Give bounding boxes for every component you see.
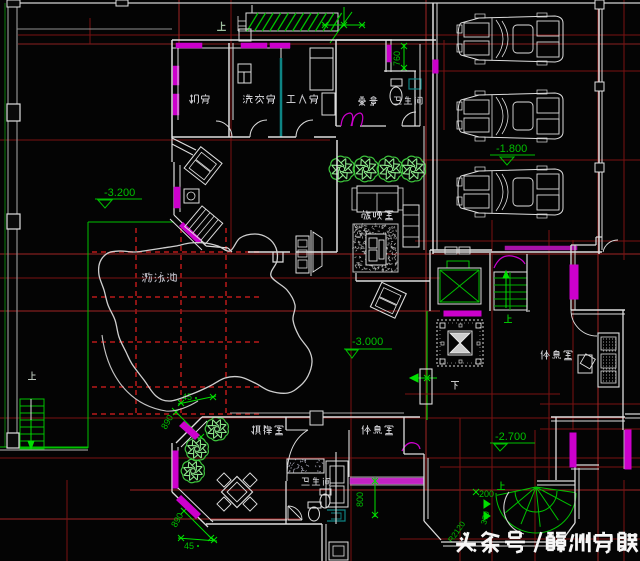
svg-text:760: 760 — [392, 51, 402, 66]
svg-text:800: 800 — [355, 492, 365, 507]
svg-text:-3.200: -3.200 — [104, 187, 135, 199]
svg-text:-3.000: -3.000 — [352, 336, 383, 348]
svg-text:200: 200 — [479, 489, 494, 499]
svg-text:-1.800: -1.800 — [496, 143, 527, 155]
svg-text:-2.700: -2.700 — [495, 431, 526, 443]
svg-text:45: 45 — [184, 541, 194, 551]
